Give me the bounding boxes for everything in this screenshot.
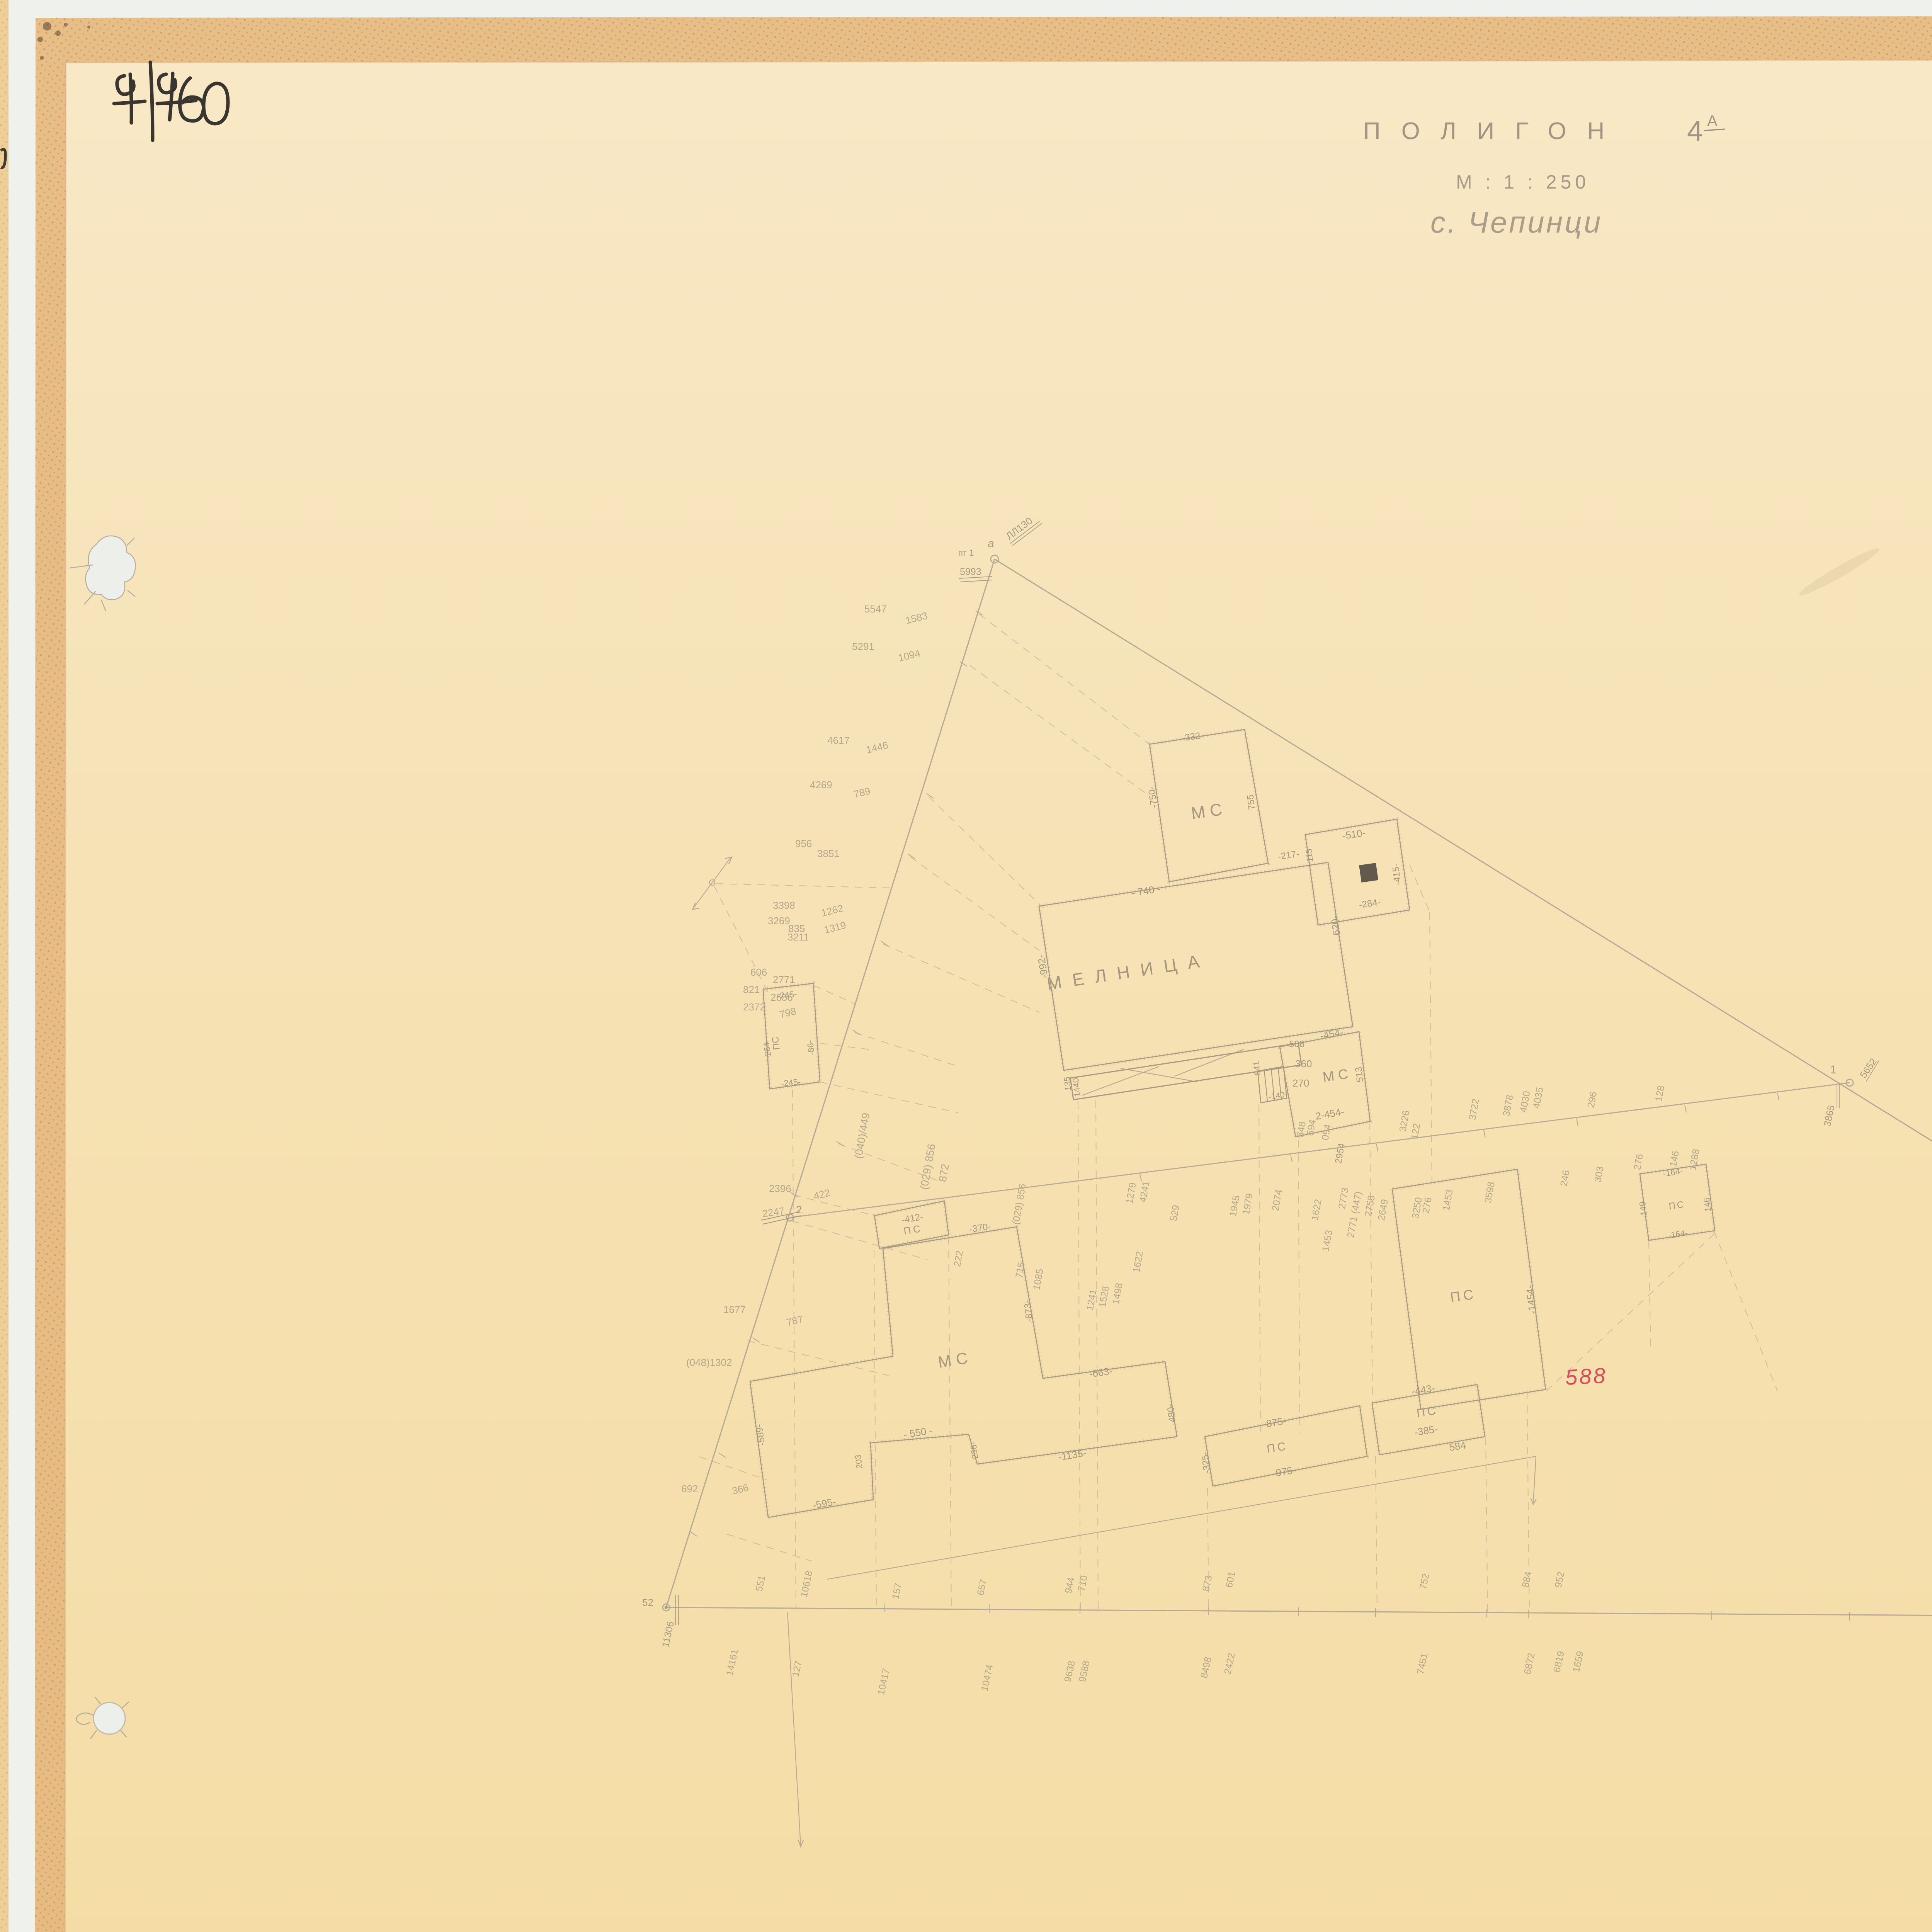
svg-text:3269: 3269 xyxy=(768,915,790,927)
svg-text:508: 508 xyxy=(1289,1039,1304,1049)
svg-text:5547: 5547 xyxy=(864,603,887,615)
svg-text:ПОЛИГОН: ПОЛИГОН xyxy=(1363,118,1625,145)
svg-text:1677: 1677 xyxy=(723,1304,746,1315)
svg-text:3851: 3851 xyxy=(817,848,840,859)
svg-text:3211: 3211 xyxy=(787,931,809,943)
svg-text:606: 606 xyxy=(750,966,767,978)
svg-text:841: 841 xyxy=(1251,1061,1262,1076)
svg-text:692: 692 xyxy=(681,1483,698,1495)
svg-text:146: 146 xyxy=(1702,1197,1713,1212)
svg-text:755: 755 xyxy=(1245,794,1257,811)
svg-text:52: 52 xyxy=(642,1597,653,1608)
svg-text:956: 956 xyxy=(795,838,812,849)
svg-text:2: 2 xyxy=(796,1204,802,1216)
svg-text:М : 1 : 250: М : 1 : 250 xyxy=(1456,171,1590,193)
svg-text:пт 1: пт 1 xyxy=(958,548,974,558)
svg-text:2372: 2372 xyxy=(743,1001,765,1013)
svg-text:(048)1302: (048)1302 xyxy=(686,1357,732,1368)
svg-text:a: a xyxy=(988,537,994,550)
svg-text:4617: 4617 xyxy=(827,735,850,746)
svg-text:5993: 5993 xyxy=(960,566,981,577)
svg-text:115: 115 xyxy=(1304,848,1315,863)
svg-text:513: 513 xyxy=(1353,1066,1366,1083)
svg-text:-245-: -245- xyxy=(781,1077,801,1088)
svg-text:4269: 4269 xyxy=(810,779,832,791)
svg-text:2396: 2396 xyxy=(769,1183,791,1194)
svg-text:-245-: -245- xyxy=(777,989,798,1001)
svg-text:821: 821 xyxy=(743,984,760,995)
svg-text:270: 270 xyxy=(1293,1077,1309,1089)
svg-text:1440: 1440 xyxy=(1071,1078,1082,1097)
svg-text:5291: 5291 xyxy=(852,641,874,652)
svg-text:-86-: -86- xyxy=(805,1040,816,1056)
svg-text:149: 149 xyxy=(1638,1201,1649,1216)
svg-text:2771: 2771 xyxy=(773,974,795,985)
svg-text:3398: 3398 xyxy=(773,900,795,911)
svg-text:А: А xyxy=(1707,112,1718,129)
svg-text:360: 360 xyxy=(1295,1058,1312,1070)
svg-text:588: 588 xyxy=(1565,1363,1608,1389)
svg-text:203: 203 xyxy=(853,1454,864,1469)
svg-text:1: 1 xyxy=(1830,1063,1837,1076)
svg-text:с. Чепинци: с. Чепинци xyxy=(1430,205,1602,239)
svg-text:620-: 620- xyxy=(1329,915,1342,936)
svg-text:4: 4 xyxy=(1687,115,1703,147)
